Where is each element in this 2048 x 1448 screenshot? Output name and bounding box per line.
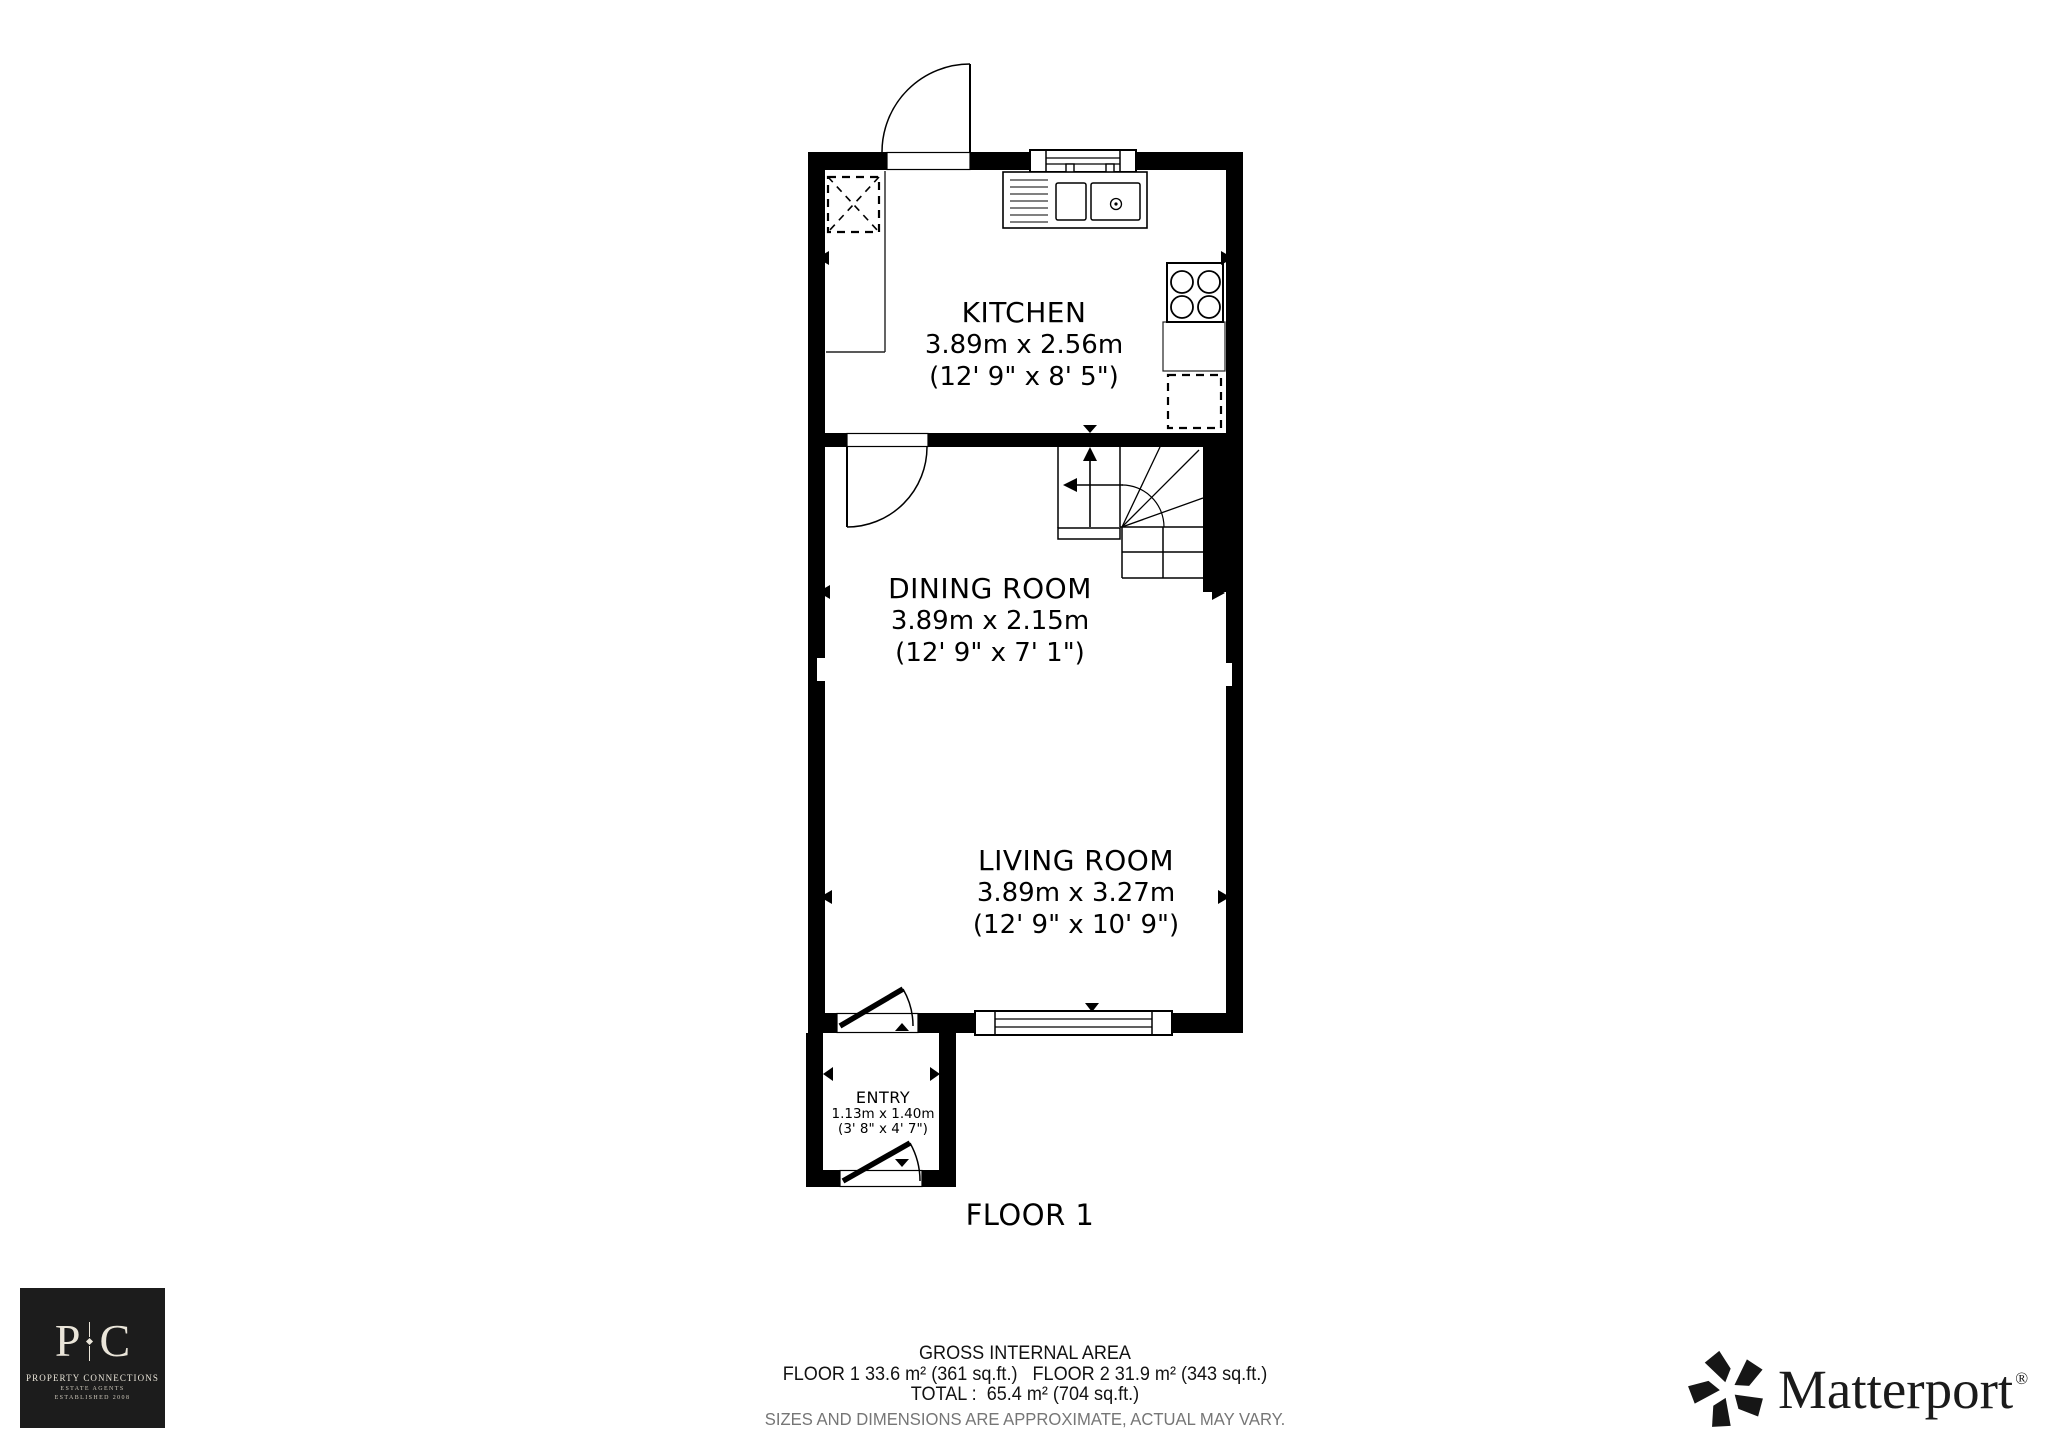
room-dim-metric: 3.89m x 2.15m xyxy=(840,605,1140,637)
floorplan-page: KITCHEN 3.89m x 2.56m (12' 9" x 8' 5") D… xyxy=(0,0,2048,1448)
gross-internal-area-title: GROSS INTERNAL AREA xyxy=(550,1344,1500,1365)
room-dim-metric: 3.89m x 2.56m xyxy=(864,329,1184,361)
registered-trademark-symbol: ® xyxy=(2015,1369,2028,1388)
room-name: ENTRY xyxy=(813,1088,953,1107)
dining-room-door xyxy=(847,447,927,527)
agency-logo: P C PROPERTY CONNECTIONS ESTATE AGENTS E… xyxy=(20,1288,165,1428)
total-area-line: TOTAL : 65.4 m² (704 sq.ft.) xyxy=(550,1385,1500,1406)
matterport-brand-text: Matterport xyxy=(1778,1359,2013,1420)
room-name: KITCHEN xyxy=(864,296,1184,329)
room-dim-metric: 1.13m x 1.40m xyxy=(813,1107,953,1122)
washing-machine-dashed-box xyxy=(828,177,879,232)
room-label-kitchen: KITCHEN 3.89m x 2.56m (12' 9" x 8' 5") xyxy=(864,296,1184,393)
matterport-pinwheel-icon xyxy=(1688,1350,1768,1430)
room-name: LIVING ROOM xyxy=(916,844,1236,877)
room-label-living: LIVING ROOM 3.89m x 3.27m (12' 9" x 10' … xyxy=(916,844,1236,941)
room-label-dining: DINING ROOM 3.89m x 2.15m (12' 9" x 7' 1… xyxy=(840,572,1140,669)
living-room-window xyxy=(975,1011,1172,1035)
agency-initials: P C xyxy=(55,1315,130,1367)
room-label-entry: ENTRY 1.13m x 1.40m (3' 8" x 4' 7") xyxy=(813,1088,953,1137)
room-dim-imperial: (12' 9" x 10' 9") xyxy=(916,909,1236,941)
room-dim-imperial: (3' 8" x 4' 7") xyxy=(813,1122,953,1137)
disclaimer-text: SIZES AND DIMENSIONS ARE APPROXIMATE, AC… xyxy=(550,1409,1500,1430)
floor-label: FLOOR 1 xyxy=(905,1198,1155,1232)
area-summary: GROSS INTERNAL AREA FLOOR 1 33.6 m² (361… xyxy=(550,1344,1500,1429)
room-dim-metric: 3.89m x 3.27m xyxy=(916,877,1236,909)
matterport-wordmark: Matterport® xyxy=(1778,1340,2026,1440)
agency-subtitle-1: ESTATE AGENTS xyxy=(60,1386,124,1392)
matterport-logo: Matterport® xyxy=(1680,1340,2040,1440)
room-dim-imperial: (12' 9" x 8' 5") xyxy=(864,361,1184,393)
kitchen-exterior-door xyxy=(882,64,970,152)
room-dim-imperial: (12' 9" x 7' 1") xyxy=(840,637,1140,669)
kitchen-window xyxy=(1030,150,1136,172)
agency-subtitle-2: ESTABLISHED 2008 xyxy=(55,1395,131,1401)
agency-divider-icon xyxy=(87,1322,92,1361)
kitchen-sink xyxy=(1003,164,1147,228)
agency-initial-c: C xyxy=(99,1318,130,1364)
agency-name: PROPERTY CONNECTIONS xyxy=(26,1373,159,1383)
floor-areas-line: FLOOR 1 33.6 m² (361 sq.ft.) FLOOR 2 31.… xyxy=(550,1365,1500,1386)
agency-initial-p: P xyxy=(55,1318,81,1364)
room-name: DINING ROOM xyxy=(840,572,1140,605)
staircase xyxy=(1058,447,1203,578)
